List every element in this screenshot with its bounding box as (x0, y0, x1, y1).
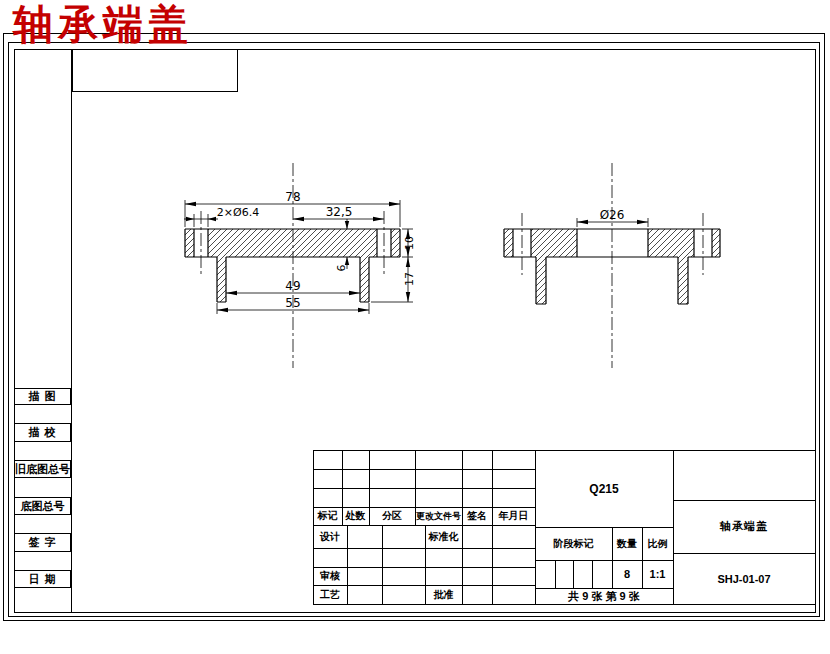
grid-line (313, 488, 535, 489)
quantity-value: 8 (612, 560, 642, 588)
right-view: Ø26 (504, 163, 720, 368)
material-cell: Q215 (535, 450, 673, 527)
grid-line (492, 450, 493, 604)
left-view: 78 2×Ø6.4 32,5 10 17 6 49 55 (184, 163, 416, 368)
drawing-sheet: 描 图 描 校 旧底图总号 底图总号 签 字 日 期 (0, 0, 830, 654)
standardization-label: 标准化 (425, 525, 462, 548)
dim-bore-diameter: Ø26 (600, 208, 625, 222)
grid-line (592, 560, 593, 588)
design-label: 设计 (313, 525, 347, 548)
grid-line (462, 450, 463, 604)
dim-hole-offset: 32,5 (326, 205, 353, 219)
grid-line (815, 450, 816, 605)
dim-recess-depth: 6 (335, 265, 348, 272)
drawing-number: SHJ-01-07 (673, 553, 815, 604)
part-name: 轴承端盖 (673, 500, 815, 553)
dim-total-height: 17 (403, 272, 416, 286)
grid-line (313, 604, 816, 605)
grid-line (573, 560, 574, 588)
dim-boss-width: 55 (285, 296, 300, 310)
stage-mark-label: 阶段标记 (535, 527, 612, 560)
rev-header-count: 处数 (342, 507, 369, 525)
dim-overall-width: 78 (285, 190, 300, 204)
sheet-info: 共 9 张 第 9 张 (535, 588, 673, 604)
dim-bolt-holes: 2×Ø6.4 (217, 206, 259, 219)
rev-header-mark: 标记 (313, 507, 342, 525)
scale-value: 1:1 (642, 560, 673, 588)
rev-header-signature: 签名 (462, 507, 492, 525)
rev-header-zone: 分区 (369, 507, 415, 525)
document-title: 轴承端盖 (13, 2, 193, 46)
rev-header-date: 年月日 (492, 507, 535, 525)
review-label: 审核 (313, 567, 347, 585)
approve-label: 批准 (425, 585, 462, 604)
dim-inner-width: 49 (285, 279, 300, 293)
grid-line (313, 469, 535, 470)
rev-header-change-doc-no: 更改文件号 (415, 507, 462, 525)
grid-line (555, 560, 556, 588)
quantity-label: 数量 (612, 527, 642, 560)
grid-line (382, 525, 383, 604)
process-label: 工艺 (313, 585, 347, 604)
scale-label: 比例 (642, 527, 673, 560)
grid-line (347, 525, 348, 604)
dim-plate-thickness: 10 (403, 236, 416, 250)
